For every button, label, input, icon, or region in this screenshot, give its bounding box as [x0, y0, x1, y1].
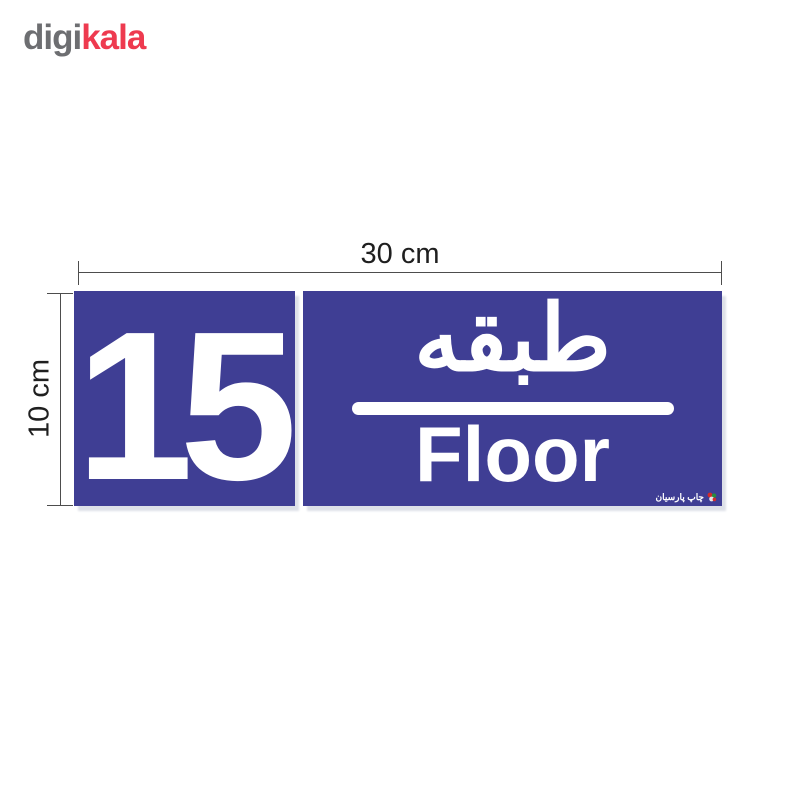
sign-left-panel: 15: [74, 291, 295, 506]
width-dimension-right-tick: [721, 261, 722, 285]
width-dimension-left-tick: [78, 261, 79, 285]
height-dimension-line: [60, 293, 61, 505]
digikala-logo-gray-part: digi: [23, 18, 81, 57]
parsian-print-logo-icon: [707, 492, 717, 502]
digikala-logo-red-part: kala: [81, 18, 145, 57]
floor-number-text: 15: [76, 286, 294, 512]
digikala-logo: digikala: [23, 20, 145, 55]
floor-label-english: Floor: [303, 415, 722, 493]
floor-label-persian: طبقه: [303, 291, 722, 388]
product-image-canvas: digikala 30 cm 10 cm 15 طبقه Floor چاپ پ…: [0, 0, 800, 800]
height-dimension-label: 10 cm: [26, 312, 55, 486]
printer-watermark: چاپ پارسیان: [656, 492, 717, 502]
width-dimension-line: [78, 272, 722, 273]
height-dimension-bottom-tick: [47, 505, 73, 506]
printer-watermark-text: چاپ پارسیان: [656, 493, 704, 502]
width-dimension-label: 30 cm: [300, 240, 500, 269]
sign-right-panel: طبقه Floor چاپ پارسیان: [303, 291, 722, 506]
height-dimension-top-tick: [47, 293, 73, 294]
